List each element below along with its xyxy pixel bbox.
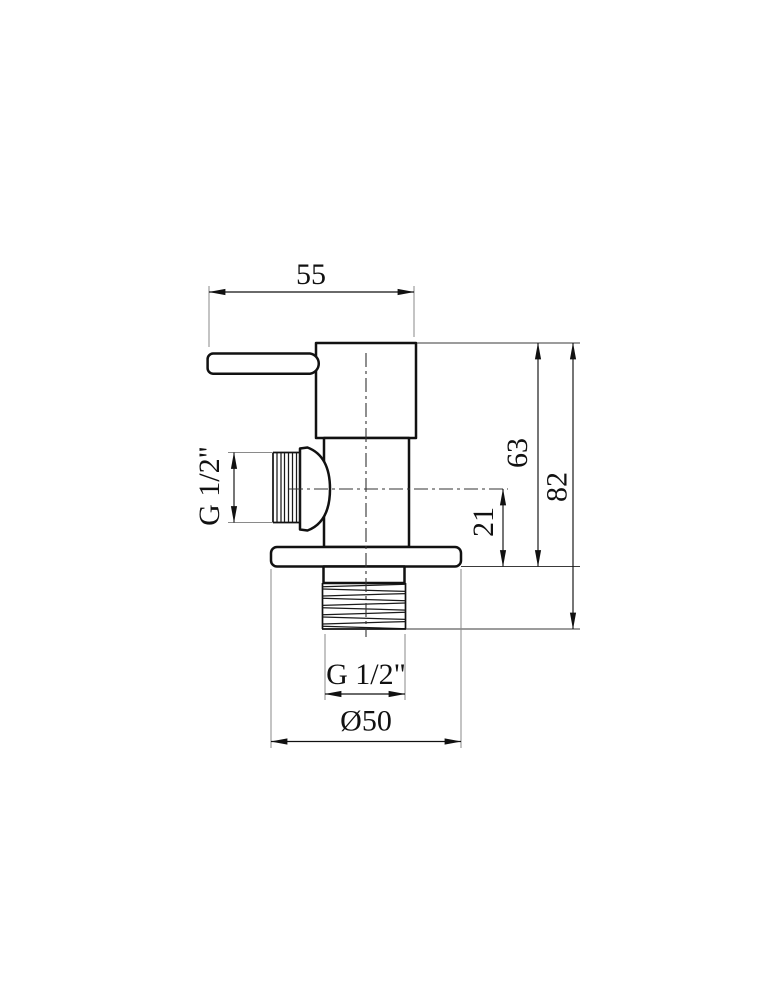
dim-total-height: 82 xyxy=(540,343,573,629)
dim-outlet-offset-label: 21 xyxy=(467,507,500,537)
technical-drawing-page: 55 G 1/2" 21 63 82 G 1/2" Ø50 xyxy=(0,0,771,1000)
valve-outline xyxy=(208,343,508,637)
dim-upper-height: 63 xyxy=(501,343,538,567)
dim-total-height-label: 82 xyxy=(540,472,573,502)
angle-valve-drawing: 55 G 1/2" 21 63 82 G 1/2" Ø50 xyxy=(0,0,771,1000)
dim-upper-height-label: 63 xyxy=(501,438,534,468)
side-outlet-thread xyxy=(273,453,300,523)
dim-bottom-thread: G 1/2" xyxy=(325,634,406,700)
valve-handle xyxy=(208,354,319,374)
dim-top-width: 55 xyxy=(209,258,414,347)
bottom-outlet-neck xyxy=(324,567,405,584)
dim-side-thread-label: G 1/2" xyxy=(193,446,226,526)
dim-bottom-thread-label: G 1/2" xyxy=(326,658,406,691)
dim-top-width-label: 55 xyxy=(296,258,326,291)
bottom-outlet-thread xyxy=(322,583,406,629)
dim-outlet-offset: 21 xyxy=(467,489,503,567)
dim-side-thread: G 1/2" xyxy=(193,446,272,526)
dim-flange-diameter-label: Ø50 xyxy=(340,704,392,737)
